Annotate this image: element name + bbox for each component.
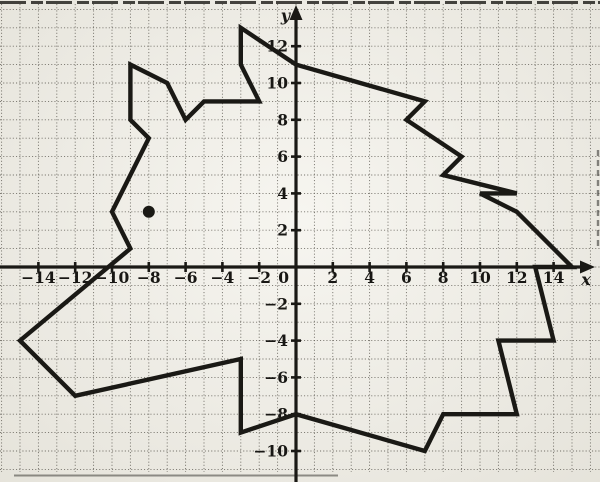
y-tick-label: 6 (277, 147, 288, 166)
x-tick-label: −8 (137, 268, 161, 287)
x-tick-label: 14 (543, 268, 565, 287)
x-tick-label: 12 (506, 268, 528, 287)
x-tick-label: −2 (247, 268, 271, 287)
x-axis-letter: x (580, 270, 591, 289)
x-tick-label: −6 (174, 268, 198, 287)
y-tick-label: 4 (277, 184, 288, 203)
y-tick-label: 8 (277, 110, 288, 129)
x-tick-label: −14 (21, 268, 56, 287)
y-tick-label: −6 (264, 368, 288, 387)
x-tick-label: 0 (278, 268, 289, 287)
y-tick-label: 10 (266, 74, 288, 93)
x-tick-label: −10 (95, 268, 130, 287)
x-tick-label: −4 (211, 268, 235, 287)
x-tick-label: 8 (438, 268, 449, 287)
y-tick-label: −10 (253, 442, 288, 461)
x-tick-label: 10 (469, 268, 491, 287)
y-tick-label: 2 (277, 221, 288, 240)
coordinate-plane: −14−12−10−8−6−4−20246810121412108642−2−4… (0, 0, 600, 482)
x-tick-label: 2 (327, 268, 338, 287)
graph-paper-scan: −14−12−10−8−6−4−20246810121412108642−2−4… (0, 0, 600, 482)
x-tick-label: 4 (364, 268, 375, 287)
y-tick-label: −4 (264, 331, 288, 350)
eye-dot (143, 206, 155, 218)
y-axis-letter: y (280, 6, 292, 25)
x-tick-label: 6 (401, 268, 412, 287)
y-axis-arrowhead (290, 5, 303, 20)
y-tick-label: −2 (264, 294, 288, 313)
